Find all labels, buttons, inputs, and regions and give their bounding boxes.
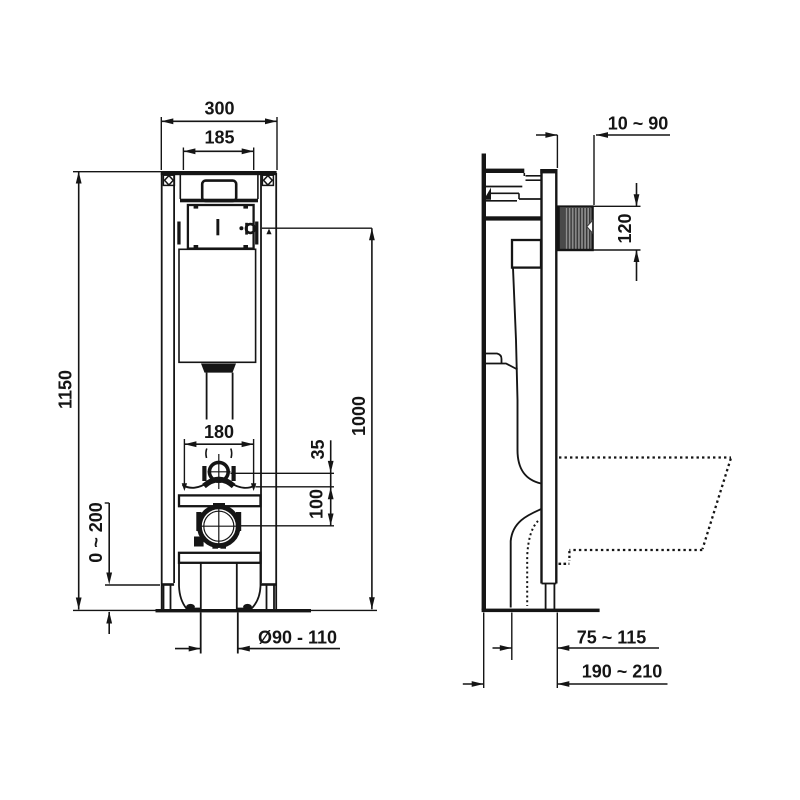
- svg-text:185: 185: [204, 128, 234, 148]
- svg-text:35: 35: [308, 439, 328, 459]
- svg-text:120: 120: [615, 213, 635, 243]
- svg-text:0 ~ 200: 0 ~ 200: [86, 502, 106, 563]
- svg-text:180: 180: [204, 422, 234, 442]
- svg-text:Ø90 - 110: Ø90 - 110: [258, 628, 337, 648]
- svg-text:10 ~ 90: 10 ~ 90: [608, 114, 669, 134]
- svg-text:100: 100: [307, 489, 327, 519]
- svg-text:300: 300: [204, 99, 234, 119]
- svg-text:75 ~ 115: 75 ~ 115: [577, 628, 647, 648]
- svg-text:1000: 1000: [349, 396, 369, 436]
- svg-text:190 ~ 210: 190 ~ 210: [582, 662, 663, 682]
- svg-text:1150: 1150: [56, 370, 76, 409]
